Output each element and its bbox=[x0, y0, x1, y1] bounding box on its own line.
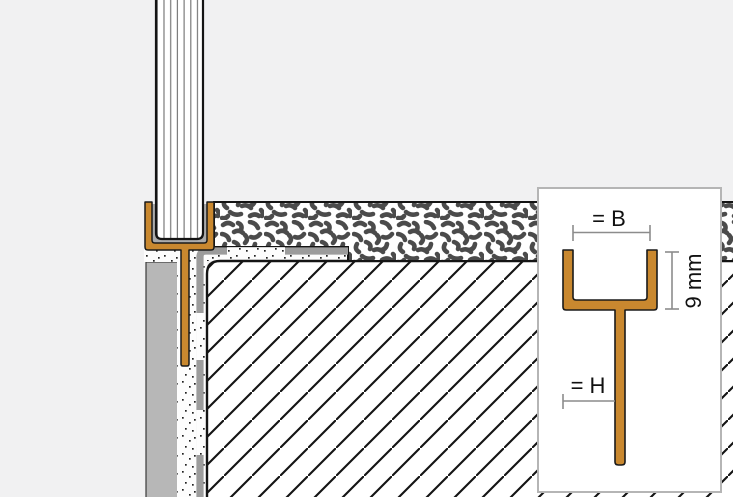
diagram-canvas: = B 9 mm = H bbox=[0, 0, 733, 497]
glass-panel bbox=[156, 0, 203, 239]
inset-panel bbox=[538, 188, 721, 492]
profile-detail-inset: = B 9 mm = H bbox=[538, 188, 721, 492]
dim-height-label: 9 mm bbox=[681, 254, 706, 309]
membrane-gap bbox=[196, 410, 204, 455]
membrane-gap bbox=[227, 247, 285, 255]
dim-width-label: = B bbox=[592, 206, 626, 231]
installation-cross-section: = B 9 mm = H bbox=[0, 0, 733, 497]
wall-substrate bbox=[146, 262, 179, 497]
membrane-gap bbox=[196, 313, 204, 360]
dim-leg-label: = H bbox=[571, 373, 606, 398]
